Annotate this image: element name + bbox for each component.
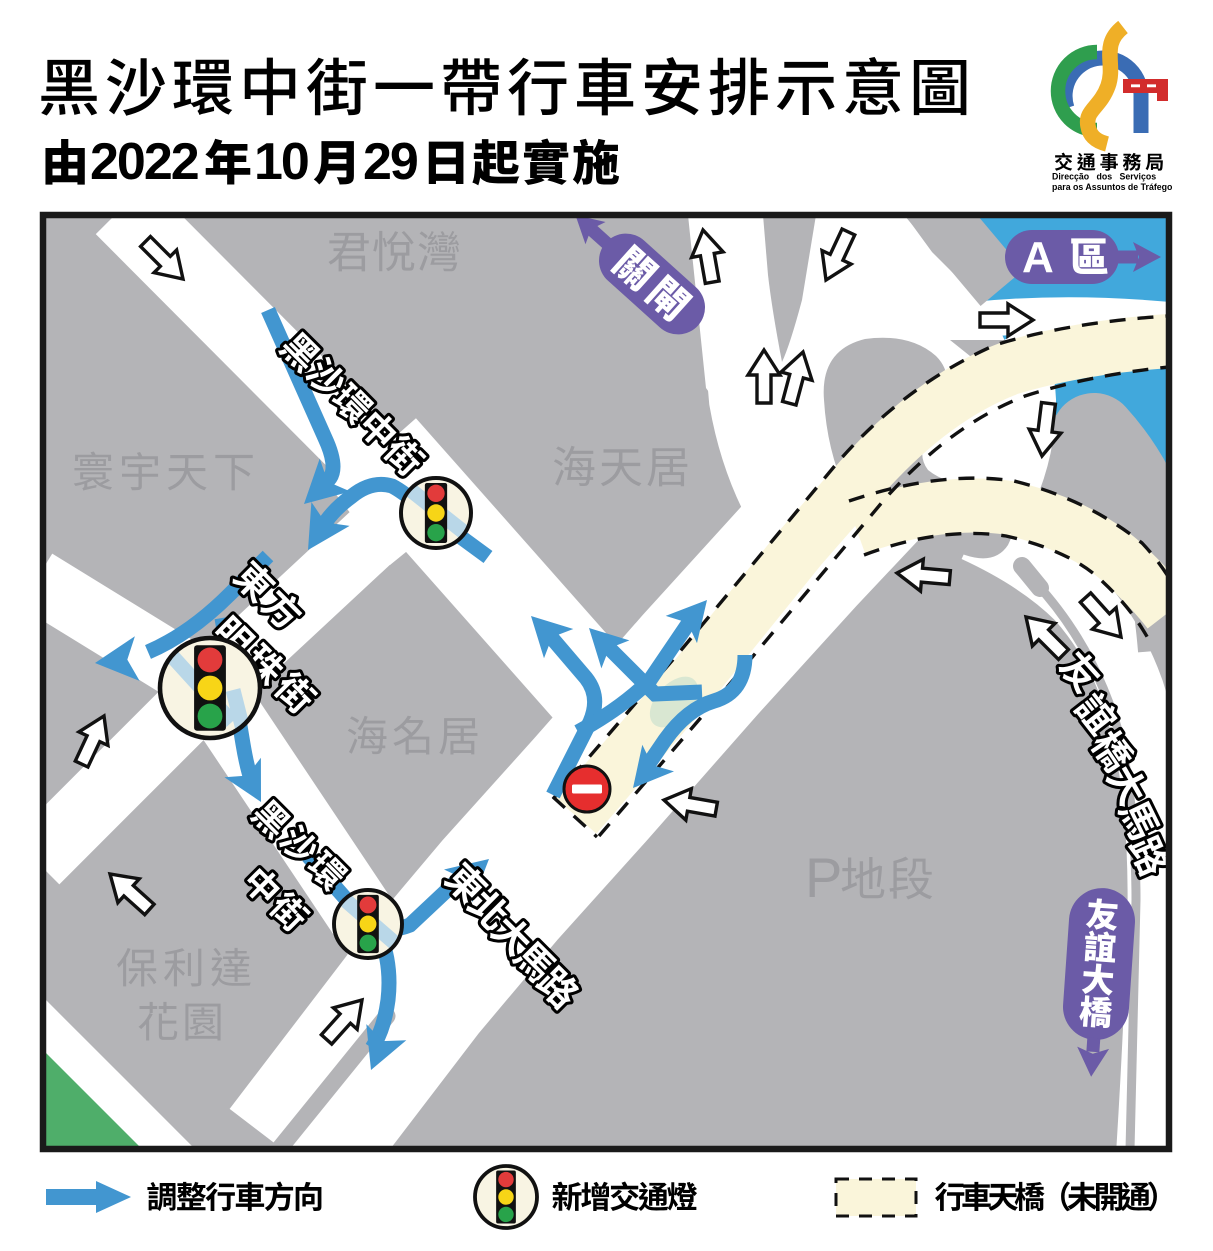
svg-text:P: P [805,846,842,909]
svg-text:para os Assuntos de Tráfego: para os Assuntos de Tráfego [1052,182,1173,192]
svg-text:Direcção dos Serviços: Direcção dos Serviços [1052,172,1156,182]
svg-text:2022: 2022 [90,133,198,191]
svg-text:29: 29 [363,133,417,191]
svg-text:10: 10 [254,133,308,191]
svg-text:A: A [1022,233,1054,282]
